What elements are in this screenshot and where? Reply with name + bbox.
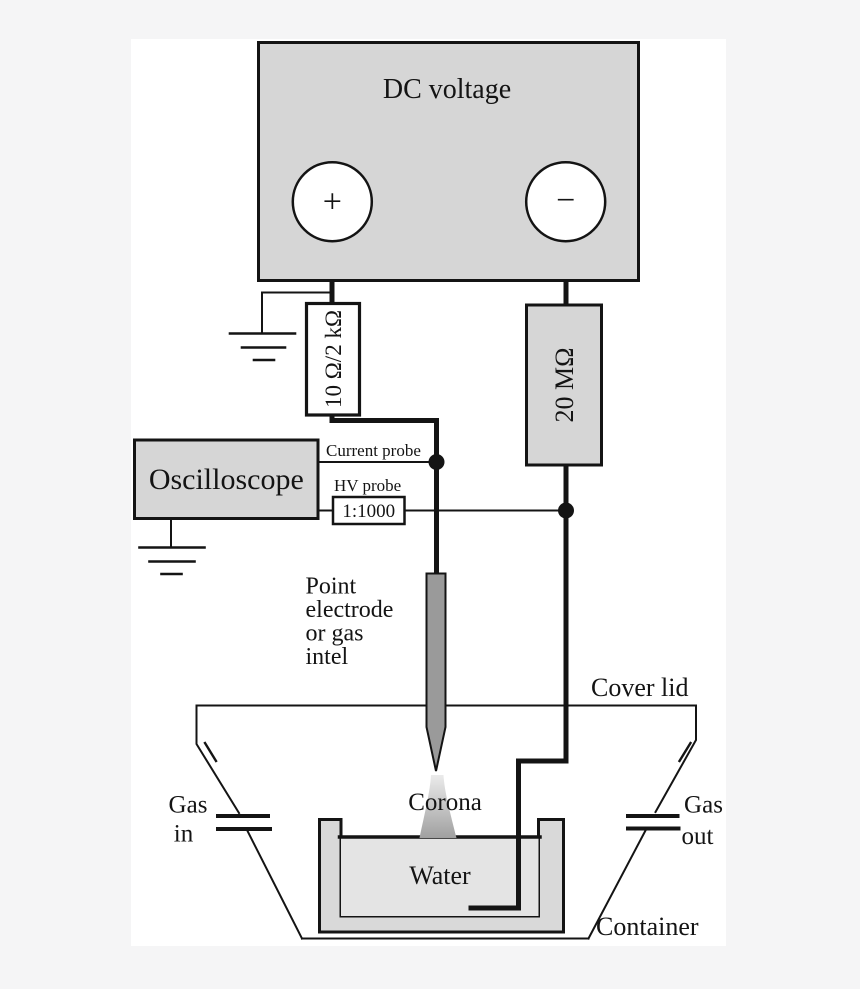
cover-lid-label: Cover lid [591,673,689,702]
corona-discharge-setup-diagram: DC voltage + − 10 Ω/2 kΩ 20 MΩ Oscillosc… [0,0,860,989]
electrode-label-line2: electrode [306,597,394,623]
oscilloscope-label: Oscilloscope [149,463,304,496]
ballast-resistor-label: 20 MΩ [550,348,579,423]
positive-terminal-label: + [323,184,342,221]
gas-out-label-line2: out [682,823,714,850]
hv-probe-label: HV probe [334,476,401,495]
current-probe-junction-dot [429,454,445,470]
negative-terminal-label: − [556,182,575,219]
container-label: Container [596,912,699,941]
gas-out-label-line1: Gas [684,792,723,819]
electrode-label-line4: intel [306,644,349,670]
electrode-label-line3: or gas [306,621,364,647]
corona-label: Corona [408,789,482,816]
gas-in-label-line2: in [174,821,194,848]
point-electrode-rod [427,574,446,772]
electrode-label-line1: Point [306,574,357,600]
hv-probe-junction-dot [558,503,574,519]
hv-ratio-label: 1:1000 [342,501,395,522]
current-probe-label: Current probe [326,441,421,460]
shunt-resistor-label: 10 Ω/2 kΩ [321,310,346,408]
dc-voltage-label: DC voltage [383,74,511,105]
water-label: Water [409,861,471,890]
gas-in-label-line1: Gas [169,792,208,819]
